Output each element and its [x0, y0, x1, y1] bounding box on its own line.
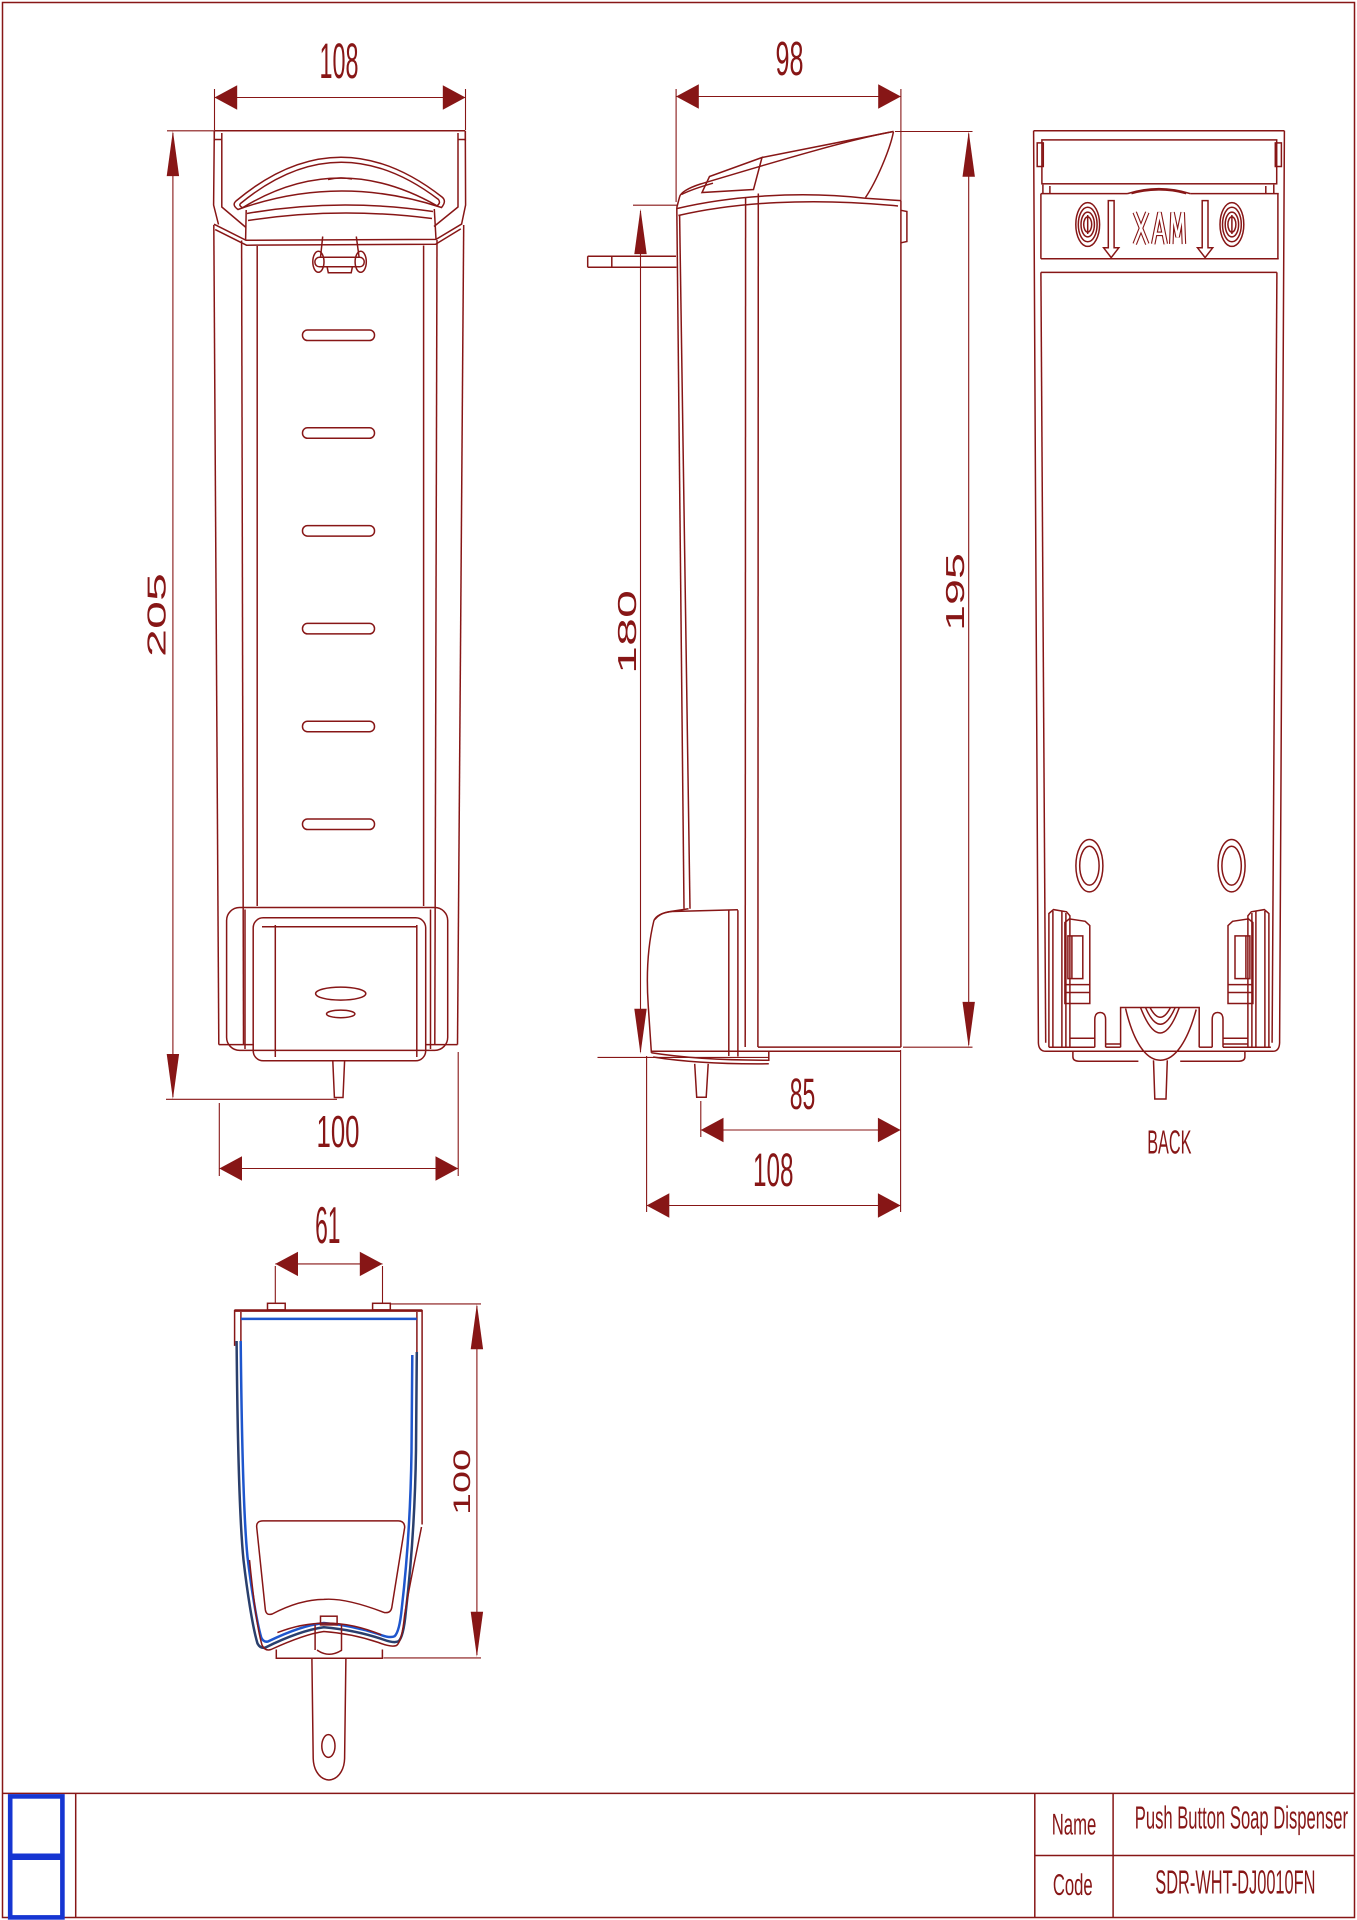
svg-text:100: 100 — [448, 1449, 475, 1515]
svg-text:180: 180 — [613, 590, 642, 674]
svg-text:108: 108 — [320, 33, 359, 89]
svg-text:100: 100 — [317, 1106, 360, 1157]
svg-text:Name: Name — [1052, 1809, 1097, 1842]
svg-text:61: 61 — [315, 1197, 340, 1255]
svg-text:205: 205 — [142, 573, 171, 657]
svg-text:108: 108 — [753, 1143, 794, 1196]
svg-text:Code: Code — [1053, 1869, 1093, 1902]
svg-text:Push Button Soap Dispenser: Push Button Soap Dispenser — [1135, 1800, 1348, 1836]
svg-text:85: 85 — [790, 1070, 816, 1119]
svg-text:BACK: BACK — [1147, 1125, 1191, 1162]
svg-text:195: 195 — [941, 553, 970, 631]
svg-text:SDR-WHT-DJ0010FN: SDR-WHT-DJ0010FN — [1155, 1865, 1315, 1902]
svg-text:98: 98 — [776, 33, 804, 86]
